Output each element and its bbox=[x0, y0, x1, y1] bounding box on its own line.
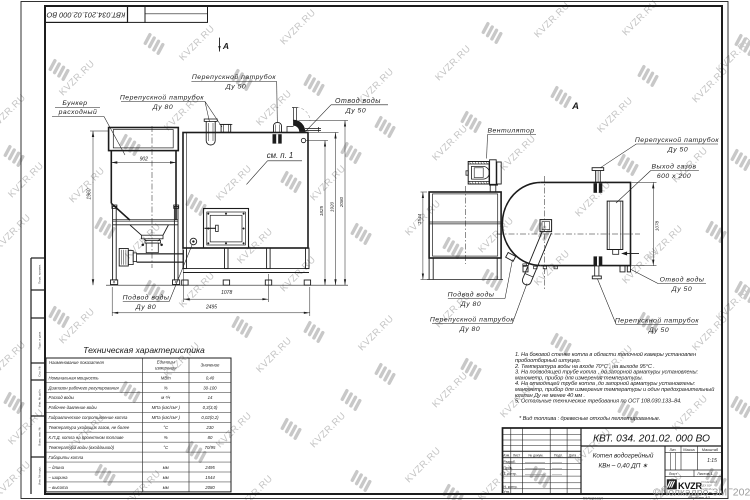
svg-text:Лист: Лист bbox=[513, 454, 521, 458]
svg-text:Выход газов: Выход газов bbox=[651, 163, 696, 171]
svg-text:см. п. 1: см. п. 1 bbox=[267, 151, 294, 160]
svg-text:расходный: расходный bbox=[58, 108, 98, 116]
svg-text:Подвод воды: Подвод воды bbox=[448, 291, 495, 299]
svg-text:Котел водогрейный: Котел водогрейный bbox=[593, 452, 654, 460]
svg-text:А: А bbox=[571, 101, 579, 112]
svg-text:Ду 80: Ду 80 bbox=[460, 301, 481, 308]
svg-text:Ду 50: Ду 50 bbox=[667, 147, 688, 154]
svg-text:Ду 50: Ду 50 bbox=[671, 286, 692, 293]
svg-text:©Полкадро-ЗМГ2021: ©Полкадро-ЗМГ2021 bbox=[653, 487, 750, 499]
svg-text:Пров.: Пров. bbox=[504, 466, 513, 470]
svg-text:2080: 2080 bbox=[204, 485, 215, 490]
svg-text:30-100: 30-100 bbox=[203, 385, 217, 390]
svg-text:№ докум.: № докум. bbox=[529, 454, 544, 458]
svg-text:1:15: 1:15 bbox=[707, 458, 717, 464]
svg-text:Температура уходящих газов, не: Температура уходящих газов, не более bbox=[49, 425, 130, 430]
svg-text:– длина: – длина bbox=[48, 465, 65, 470]
svg-text:Спр. №: Спр. № bbox=[38, 366, 42, 377]
svg-text:Подвод воды: Подвод воды bbox=[123, 294, 170, 302]
svg-text:0,3(3,0): 0,3(3,0) bbox=[203, 405, 218, 410]
svg-text:измерения: измерения bbox=[155, 366, 177, 371]
svg-text:Перепускной патрубок: Перепускной патрубок bbox=[120, 94, 205, 102]
svg-text:КВТ.034.201.02.000 ВО: КВТ.034.201.02.000 ВО bbox=[46, 10, 125, 19]
svg-text:1920: 1920 bbox=[330, 201, 335, 212]
svg-text:1078: 1078 bbox=[221, 290, 232, 296]
svg-text:пробоотборный штуцер.: пробоотборный штуцер. bbox=[515, 357, 581, 364]
svg-text:МВт: МВт bbox=[161, 375, 171, 380]
svg-text:А: А bbox=[222, 41, 229, 51]
svg-text:Изм.: Изм. bbox=[503, 454, 510, 458]
svg-text:Лит.: Лит. bbox=[670, 448, 677, 452]
svg-text:Температура воды (вход/выход): Температура воды (вход/выход) bbox=[49, 445, 115, 450]
svg-text:80: 80 bbox=[208, 435, 213, 440]
svg-text:Вентилятор: Вентилятор bbox=[487, 128, 534, 135]
svg-text:МПа (кгс/см² ): МПа (кгс/см² ) bbox=[152, 405, 181, 410]
svg-text:2080: 2080 bbox=[339, 196, 344, 208]
svg-text:Инв. № дубл.: Инв. № дубл. bbox=[38, 389, 42, 408]
svg-text:5. Остальные технические треб: 5. Остальные технические требования по О… bbox=[515, 399, 682, 405]
svg-text:Дата: Дата bbox=[569, 454, 577, 458]
svg-text:Лист: Лист bbox=[669, 472, 678, 476]
svg-text:Подп. и дата: Подп. и дата bbox=[38, 331, 42, 349]
svg-text:Ду 50: Ду 50 bbox=[345, 108, 366, 115]
svg-text:Отвод воды: Отвод воды bbox=[660, 276, 705, 284]
svg-text:МПа (кгс/см² ): МПа (кгс/см² ) bbox=[152, 415, 181, 420]
svg-text:Взам. инв. №: Взам. инв. № bbox=[38, 426, 42, 445]
svg-text:Отвод воды: Отвод воды bbox=[335, 97, 381, 105]
svg-text:1960: 1960 bbox=[87, 188, 93, 199]
svg-text:2495: 2495 bbox=[204, 465, 215, 470]
svg-text:1078: 1078 bbox=[655, 220, 660, 231]
svg-text:Значение: Значение bbox=[201, 363, 220, 368]
svg-text:Ду 80: Ду 80 bbox=[152, 104, 173, 111]
svg-text:Ду 80: Ду 80 bbox=[459, 326, 480, 333]
svg-text:70/95: 70/95 bbox=[205, 445, 216, 450]
svg-text:Масса: Масса bbox=[683, 448, 695, 452]
svg-text:КУЗНЕЧНЫЙ: КУЗНЕЧНЫЙ bbox=[701, 480, 717, 484]
svg-text:КВн – 0,40 ДП ∗: КВн – 0,40 ДП ∗ bbox=[598, 463, 648, 470]
svg-text:%: % bbox=[164, 385, 168, 390]
svg-text:%: % bbox=[164, 435, 168, 440]
svg-text:мм: мм bbox=[163, 485, 169, 490]
svg-text:230: 230 bbox=[205, 425, 214, 430]
svg-text:– ширина: – ширина bbox=[48, 475, 69, 480]
svg-text:Н. контр.: Н. контр. bbox=[504, 485, 518, 489]
svg-text:Наименование показателя: Наименование показателя bbox=[49, 360, 105, 365]
svg-text:Перепускной патрубок: Перепускной патрубок bbox=[615, 317, 700, 325]
svg-text:К.П.Д. котла на проектном топл: К.П.Д. котла на проектном топливе bbox=[49, 435, 125, 440]
svg-text:мм: мм bbox=[163, 475, 169, 480]
svg-text:Бункер: Бункер bbox=[62, 100, 87, 107]
svg-text:2495: 2495 bbox=[205, 305, 217, 311]
svg-text:Ду 50: Ду 50 bbox=[648, 327, 669, 334]
svg-text:Единицы: Единицы bbox=[157, 360, 176, 365]
svg-text:Гидравлическое сопротивление к: Гидравлическое сопротивление котла bbox=[49, 415, 129, 420]
svg-text:КВТ. 034. 201.02. 000 ВО: КВТ. 034. 201.02. 000 ВО bbox=[593, 434, 710, 445]
svg-text:1544: 1544 bbox=[205, 475, 215, 480]
svg-text:Перепускной патрубок: Перепускной патрубок bbox=[635, 136, 720, 144]
svg-text:Т. контр.: Т. контр. bbox=[504, 472, 517, 476]
svg-text:Утв.: Утв. bbox=[504, 490, 511, 494]
svg-text:Инв. № подл.: Инв. № подл. bbox=[38, 466, 42, 485]
svg-text:Техническая характеристика: Техническая характеристика bbox=[83, 345, 205, 355]
svg-text:Ду 80: Ду 80 bbox=[135, 304, 156, 311]
svg-text:Разраб.: Разраб. bbox=[504, 460, 516, 464]
svg-text:Диапазон рабочего регулировани: Диапазон рабочего регулирования bbox=[48, 385, 120, 390]
svg-text:м ³/ч: м ³/ч bbox=[161, 395, 171, 400]
svg-text:Перепускной патрубок: Перепускной патрубок bbox=[430, 316, 515, 324]
svg-text:Листов 1: Листов 1 bbox=[697, 472, 713, 476]
svg-text:Перв. примен.: Перв. примен. bbox=[38, 264, 42, 284]
svg-text:Подп.: Подп. bbox=[554, 454, 563, 458]
svg-text:Перепускной патрубок: Перепускной патрубок bbox=[192, 73, 277, 81]
svg-text:0,02(0,2): 0,02(0,2) bbox=[201, 415, 219, 420]
svg-text:Ду 50: Ду 50 bbox=[225, 84, 246, 91]
svg-text:Расход воды: Расход воды bbox=[49, 395, 75, 400]
svg-text:1544: 1544 bbox=[417, 213, 422, 224]
svg-text:600 х 200: 600 х 200 bbox=[657, 173, 691, 180]
svg-text:Габариты котла: Габариты котла bbox=[49, 455, 84, 460]
svg-text:Масштаб: Масштаб bbox=[702, 448, 719, 452]
svg-text:902: 902 bbox=[140, 157, 149, 163]
svg-text:Номинальная мощность: Номинальная мощность bbox=[49, 375, 100, 380]
svg-text:Рабочее давление воды: Рабочее давление воды bbox=[49, 405, 98, 410]
svg-text:мм: мм bbox=[163, 465, 169, 470]
svg-text:0,40: 0,40 bbox=[206, 375, 215, 380]
svg-text:* Вид топлива : древесные от: * Вид топлива : древесные отходы пеллети… bbox=[519, 416, 660, 422]
svg-text:14: 14 bbox=[208, 395, 213, 400]
svg-text:– высота: – высота bbox=[48, 485, 69, 490]
svg-text:Копировал: Копировал bbox=[583, 495, 604, 500]
svg-text:1825: 1825 bbox=[319, 205, 324, 216]
